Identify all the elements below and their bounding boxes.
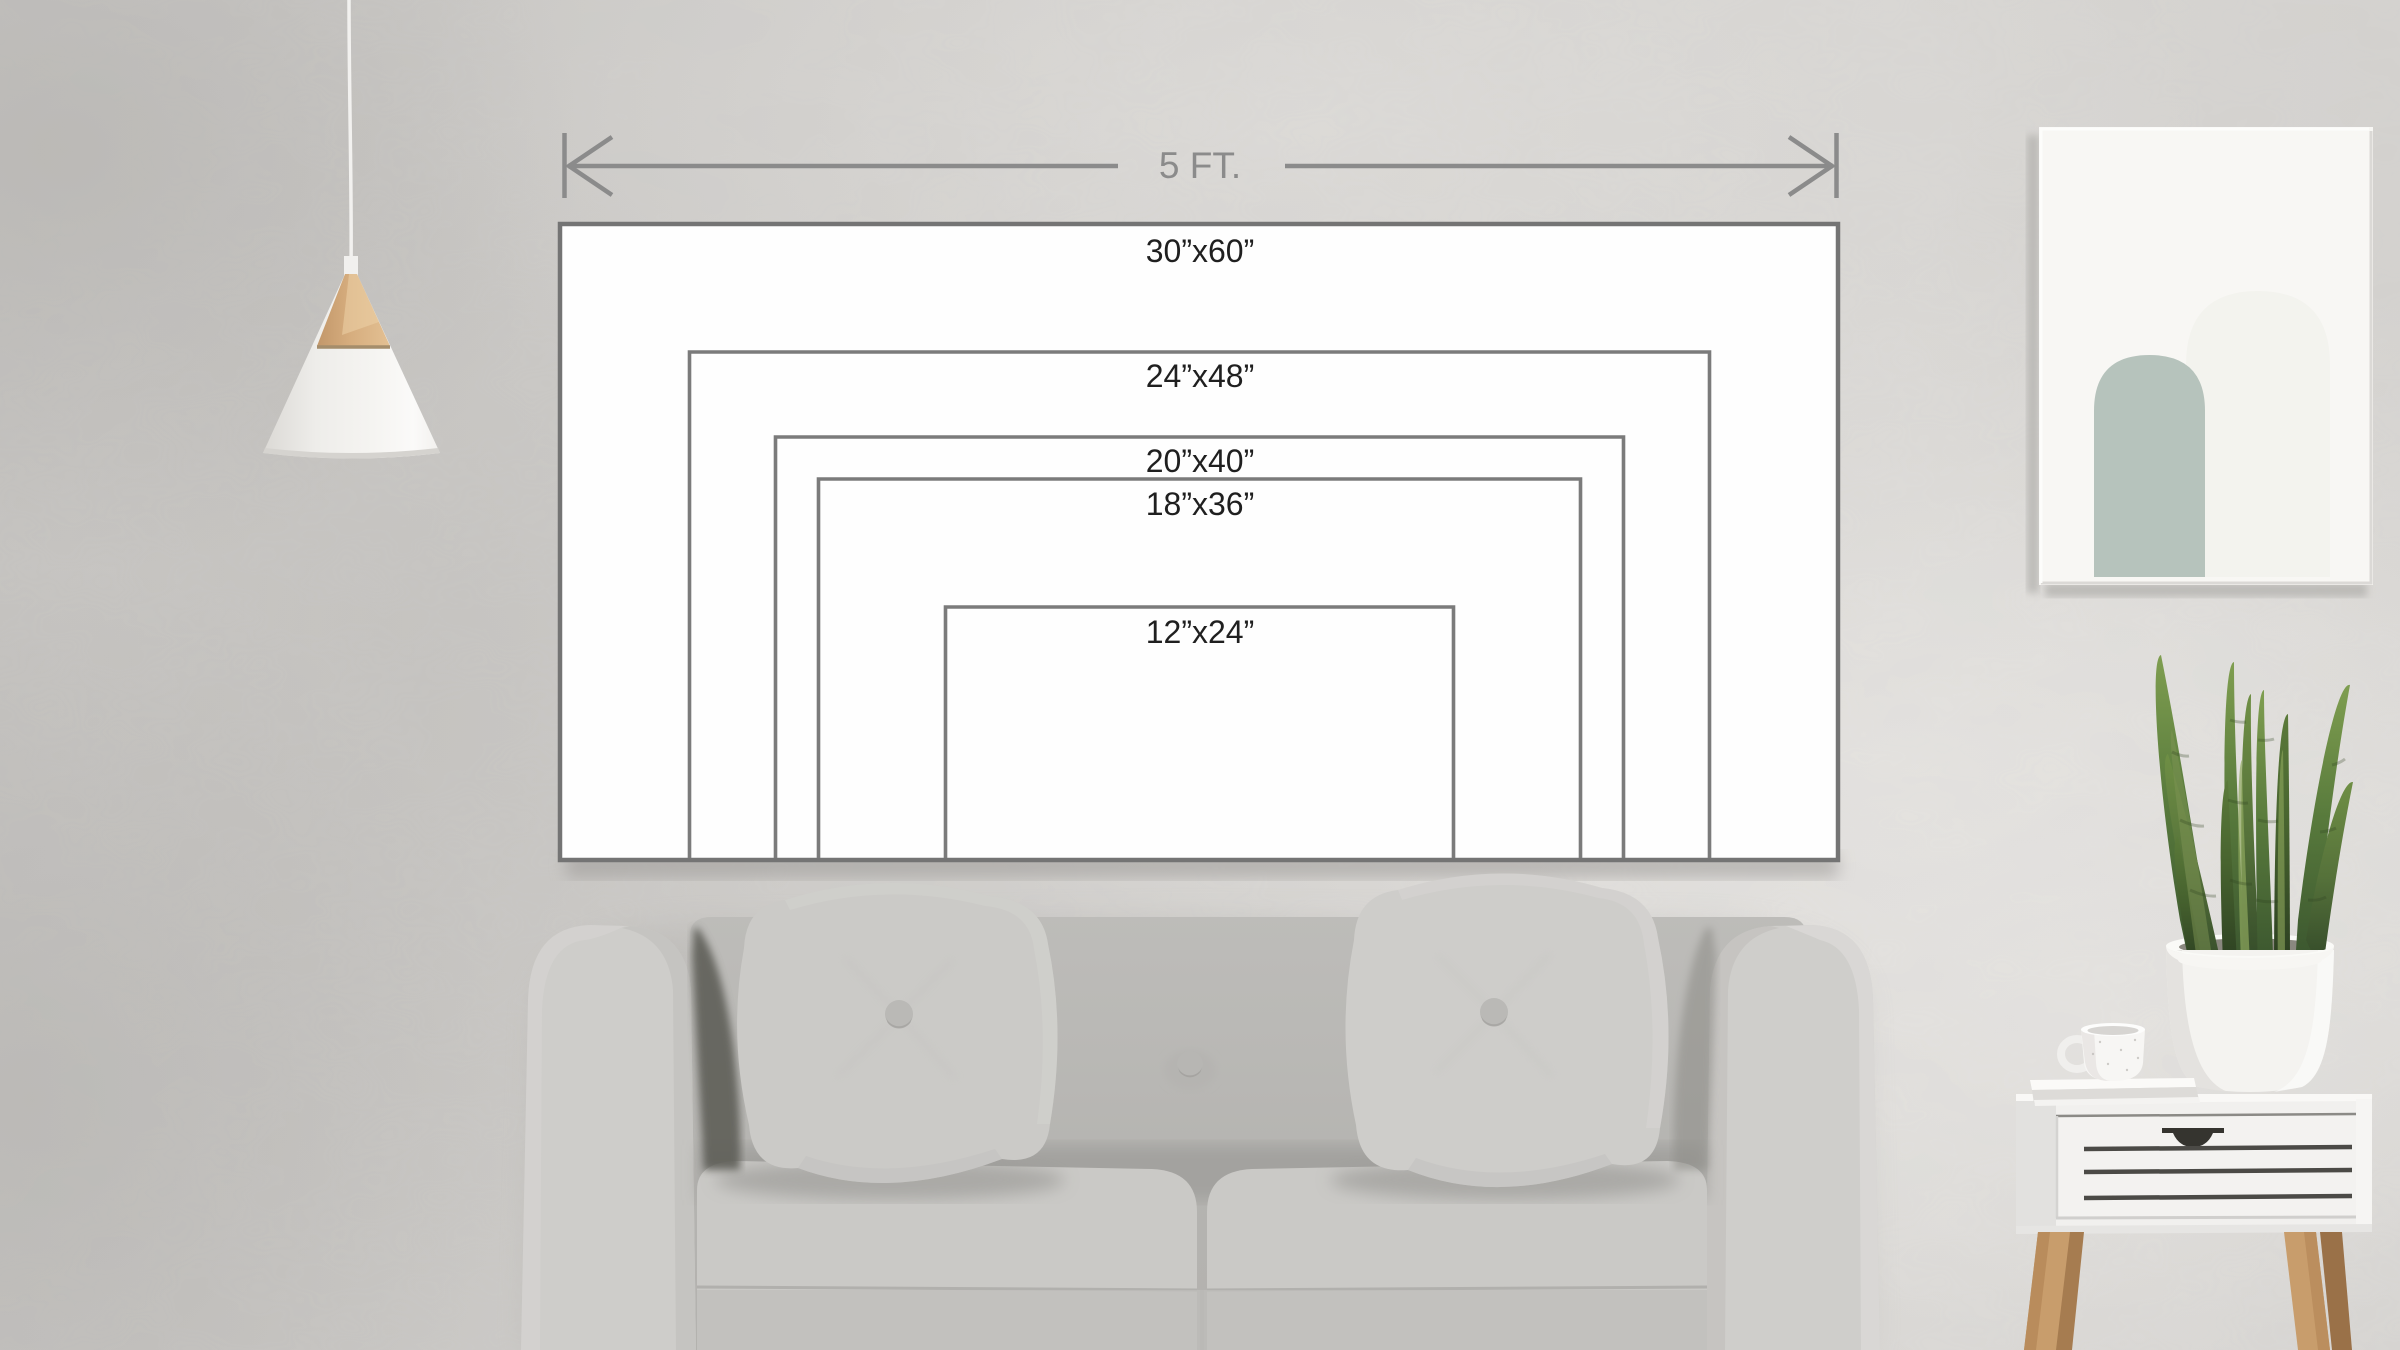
svg-text:30”x60”: 30”x60” — [1146, 233, 1255, 269]
svg-text:12”x24”: 12”x24” — [1146, 614, 1255, 650]
svg-text:24”x48”: 24”x48” — [1146, 358, 1255, 394]
svg-text:5 FT.: 5 FT. — [1159, 145, 1241, 186]
svg-text:20”x40”: 20”x40” — [1146, 443, 1255, 479]
svg-text:18”x36”: 18”x36” — [1146, 486, 1255, 522]
